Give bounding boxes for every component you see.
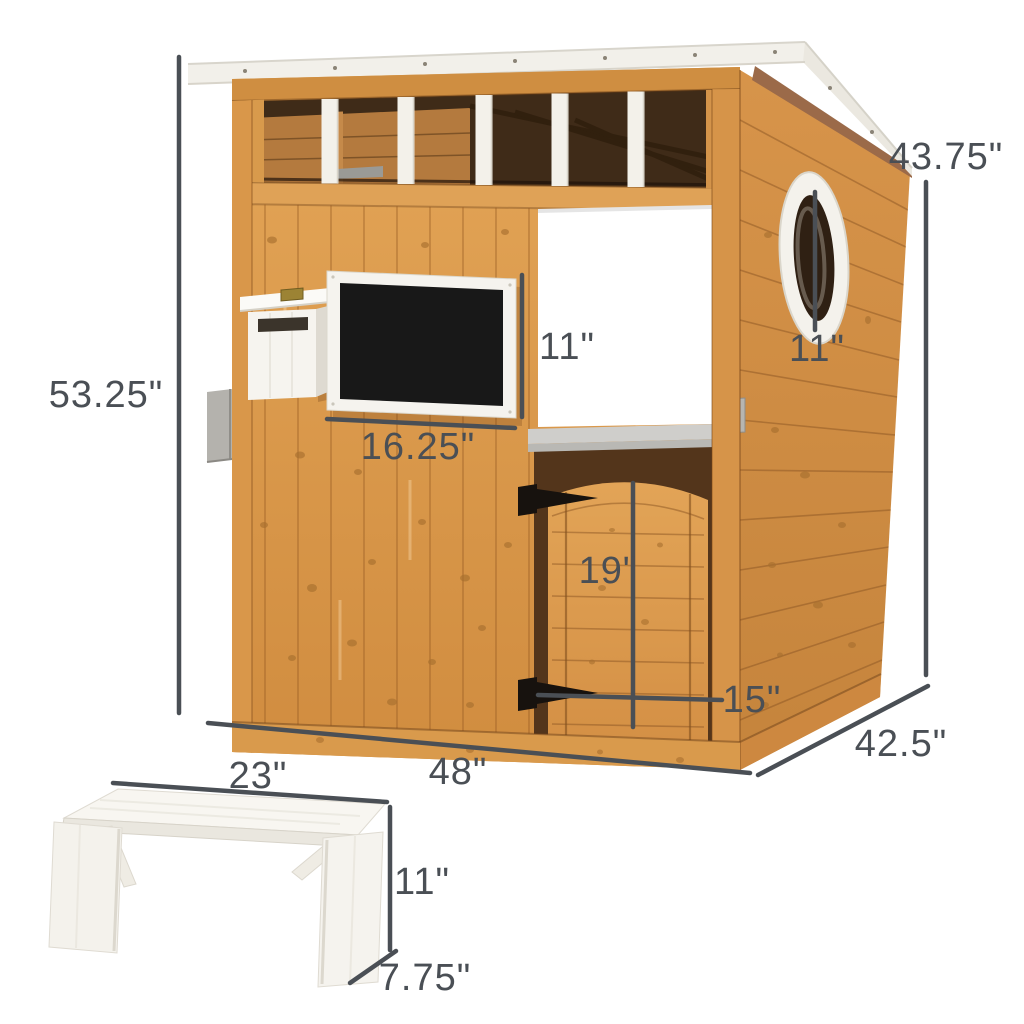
bench-illustration	[49, 789, 385, 987]
mailbox-slot	[258, 317, 308, 332]
playhouse-illustration	[0, 0, 1024, 1024]
product-dimension-diagram: 53.25" 43.75" 11" 16.25" 11" 19" 15" 48"…	[0, 0, 1024, 1024]
chalkboard	[327, 271, 522, 426]
dim-label-door-height: 19"	[579, 552, 638, 590]
dim-label-door-width: 15"	[723, 681, 782, 719]
dim-label-bench-depth: 7.75"	[379, 959, 471, 997]
right-corner-post	[712, 89, 740, 770]
bench-left-leg	[49, 822, 122, 953]
door	[548, 482, 708, 744]
dim-label-bench-height: 11"	[394, 863, 450, 901]
service-window	[538, 205, 712, 427]
left-corner-trim	[232, 100, 252, 753]
left-side-bracket	[207, 389, 232, 462]
dim-label-base-depth: 42.5"	[855, 725, 947, 763]
dim-label-porthole-height: 11"	[789, 330, 845, 368]
dim-label-chalkboard-height: 11"	[539, 328, 595, 366]
door-assembly	[518, 443, 718, 752]
side-wall	[740, 70, 910, 770]
dim-label-bench-width: 23"	[229, 757, 288, 795]
dim-label-front-height: 53.25"	[49, 376, 164, 414]
chalkboard-surface	[340, 283, 503, 406]
dim-label-base-width: 48"	[429, 753, 488, 791]
dim-label-back-height: 43.75"	[889, 138, 1004, 176]
dim-label-chalkboard-width: 16.25"	[361, 428, 476, 466]
mailbox-clasp	[281, 288, 303, 301]
